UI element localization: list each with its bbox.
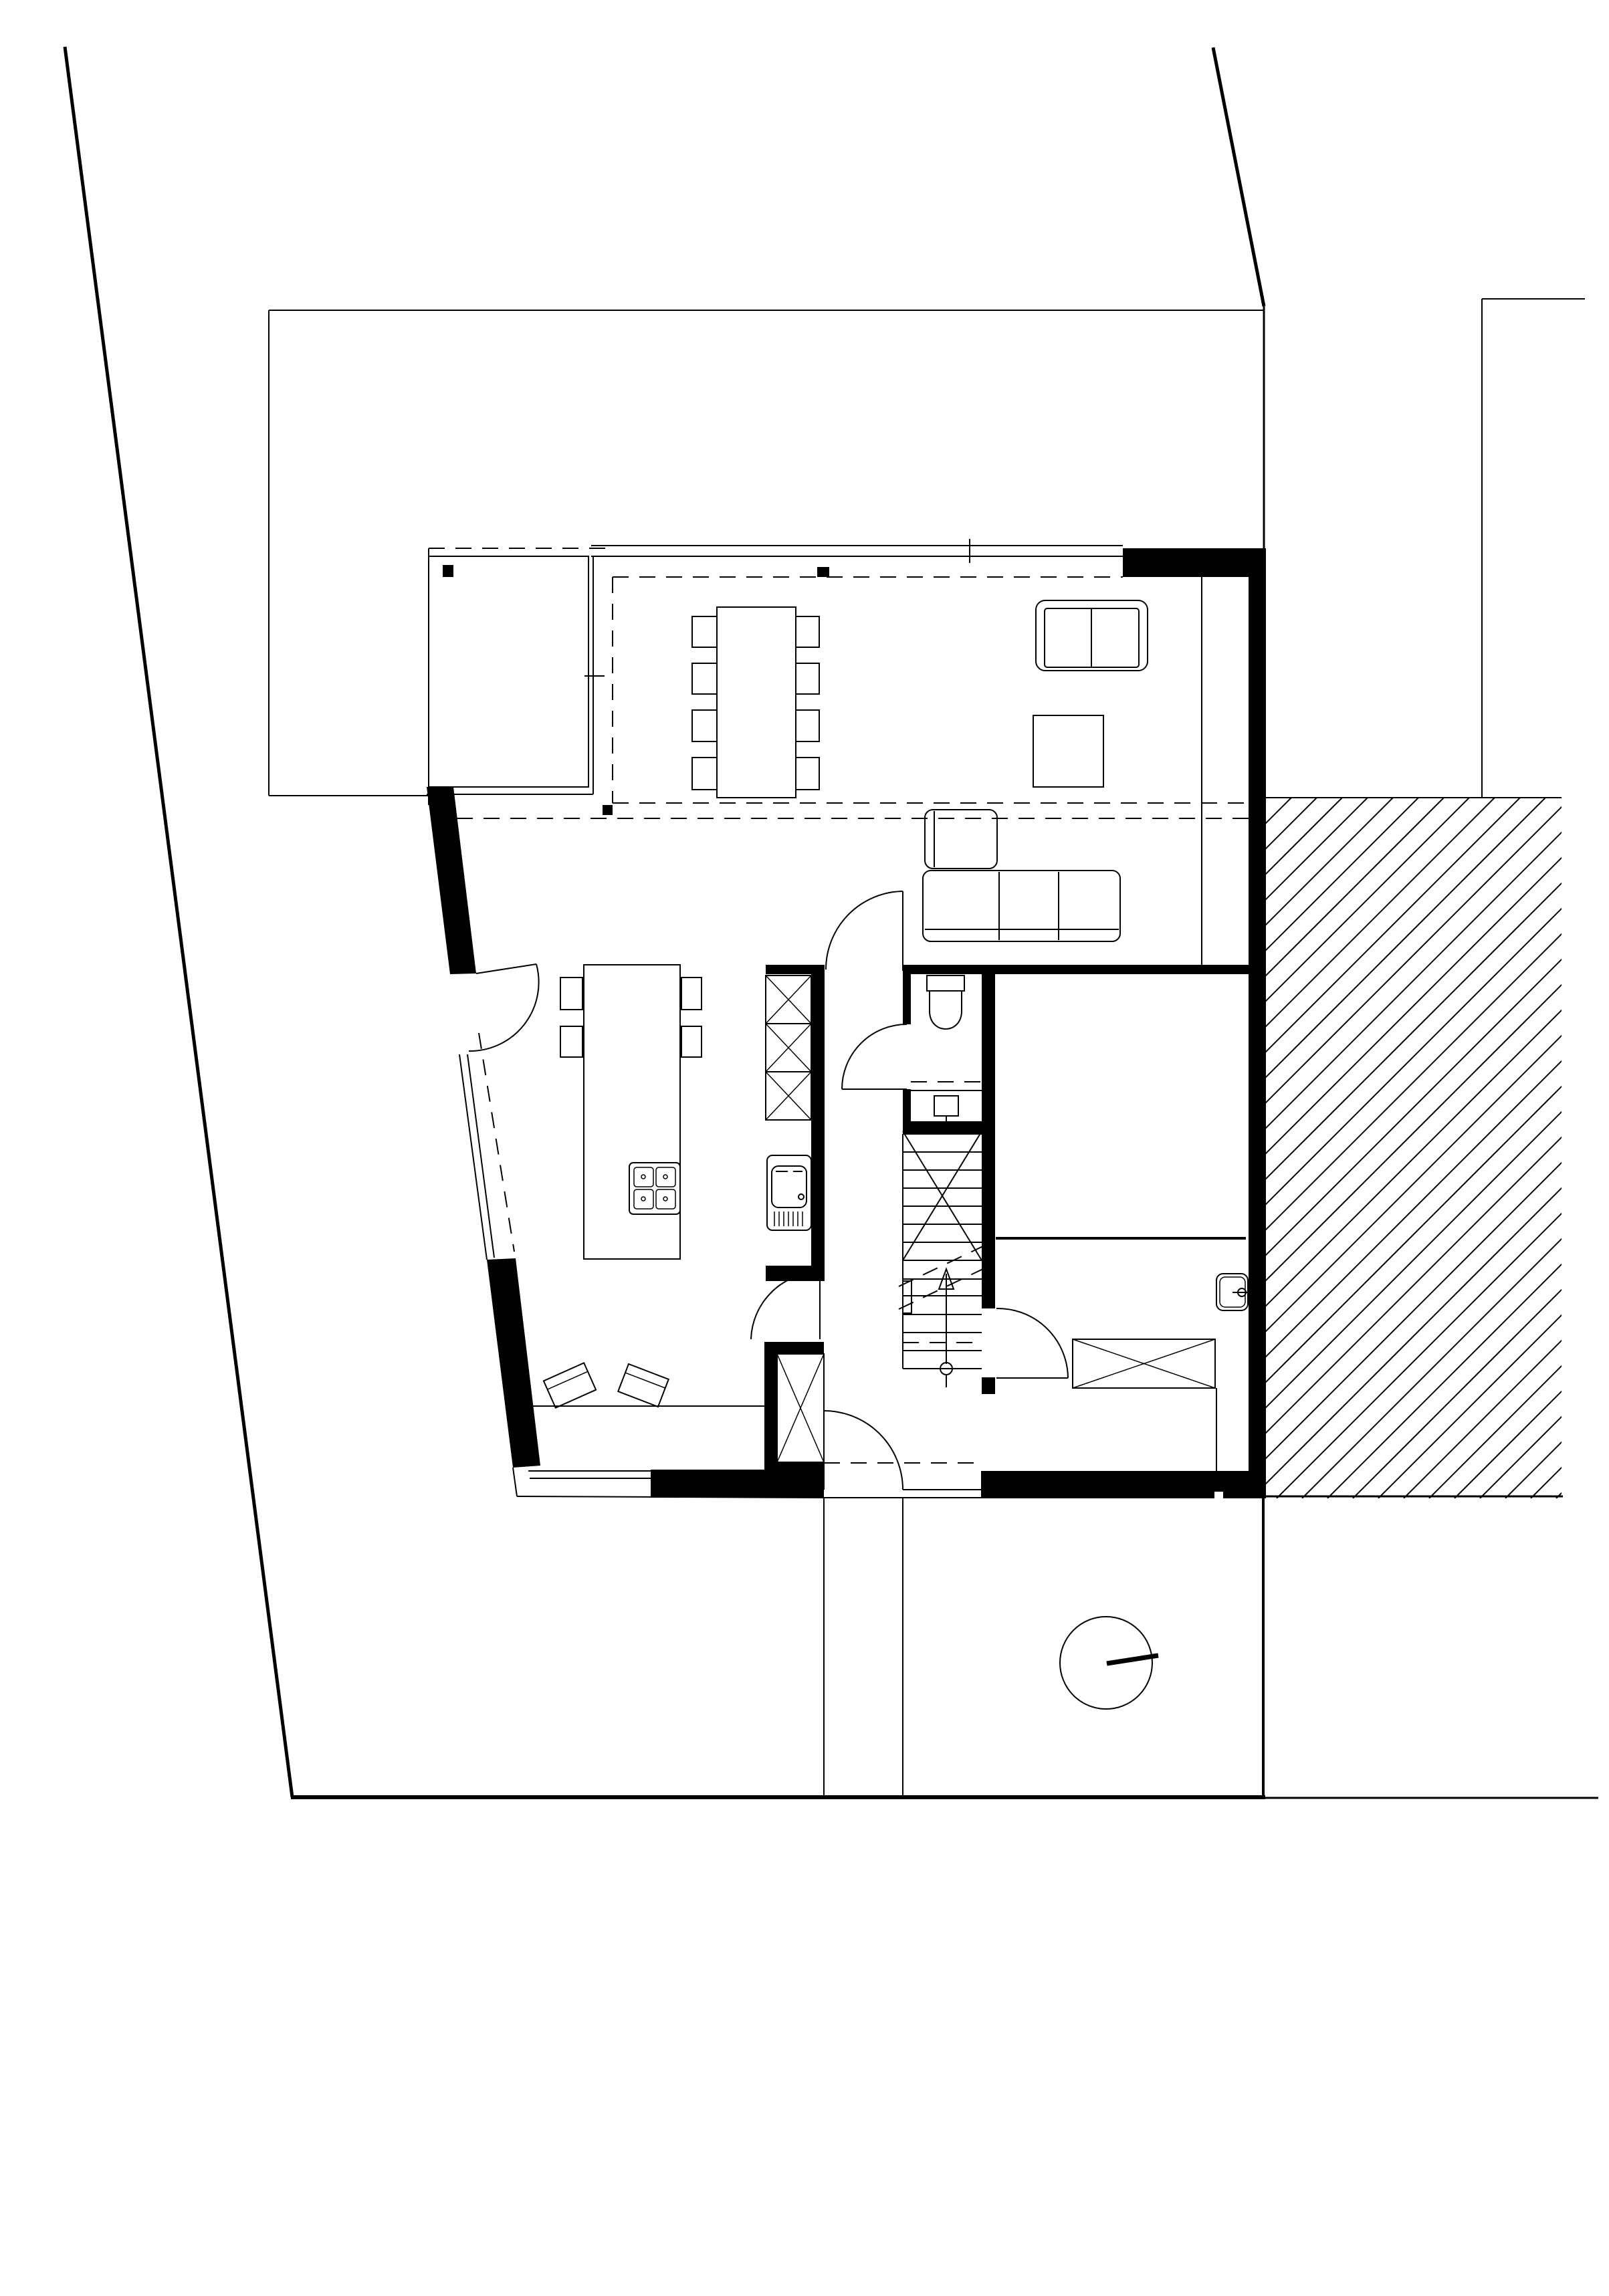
wall-top-right-horizontal [1123, 548, 1266, 577]
closet-wall-west [764, 1342, 777, 1472]
wall-kitchen-east [811, 974, 825, 1266]
wall-south-east [981, 1471, 1266, 1498]
wall-south-east-notch [1214, 1492, 1223, 1498]
roof-column-mid [817, 567, 829, 577]
paper-background [0, 0, 1609, 2296]
wall-east [1249, 577, 1266, 1498]
closet-cap-south [764, 1462, 824, 1472]
wall-kitchen-cap-north [766, 965, 825, 974]
closet-cap-north [764, 1342, 824, 1354]
wall-stair-east [982, 974, 995, 1308]
roof-column-corner [603, 805, 613, 815]
wall-interior-living-south [903, 965, 1266, 974]
wall-stair-east-stub [982, 1377, 995, 1394]
floor-plan-canvas [0, 0, 1609, 2296]
wall-kitchen-cap-south [766, 1266, 825, 1281]
wall-wc-west-upper [903, 974, 911, 1024]
wall-wc-west-lower [903, 1089, 911, 1121]
floor-plan-svg [0, 0, 1609, 2296]
roof-column-terrace [443, 565, 453, 577]
kitchen-sink-drainer [774, 1212, 802, 1226]
wall-wc-south [903, 1121, 982, 1134]
floor-plan-page [0, 0, 1609, 2296]
wall-south-mid [651, 1470, 824, 1498]
